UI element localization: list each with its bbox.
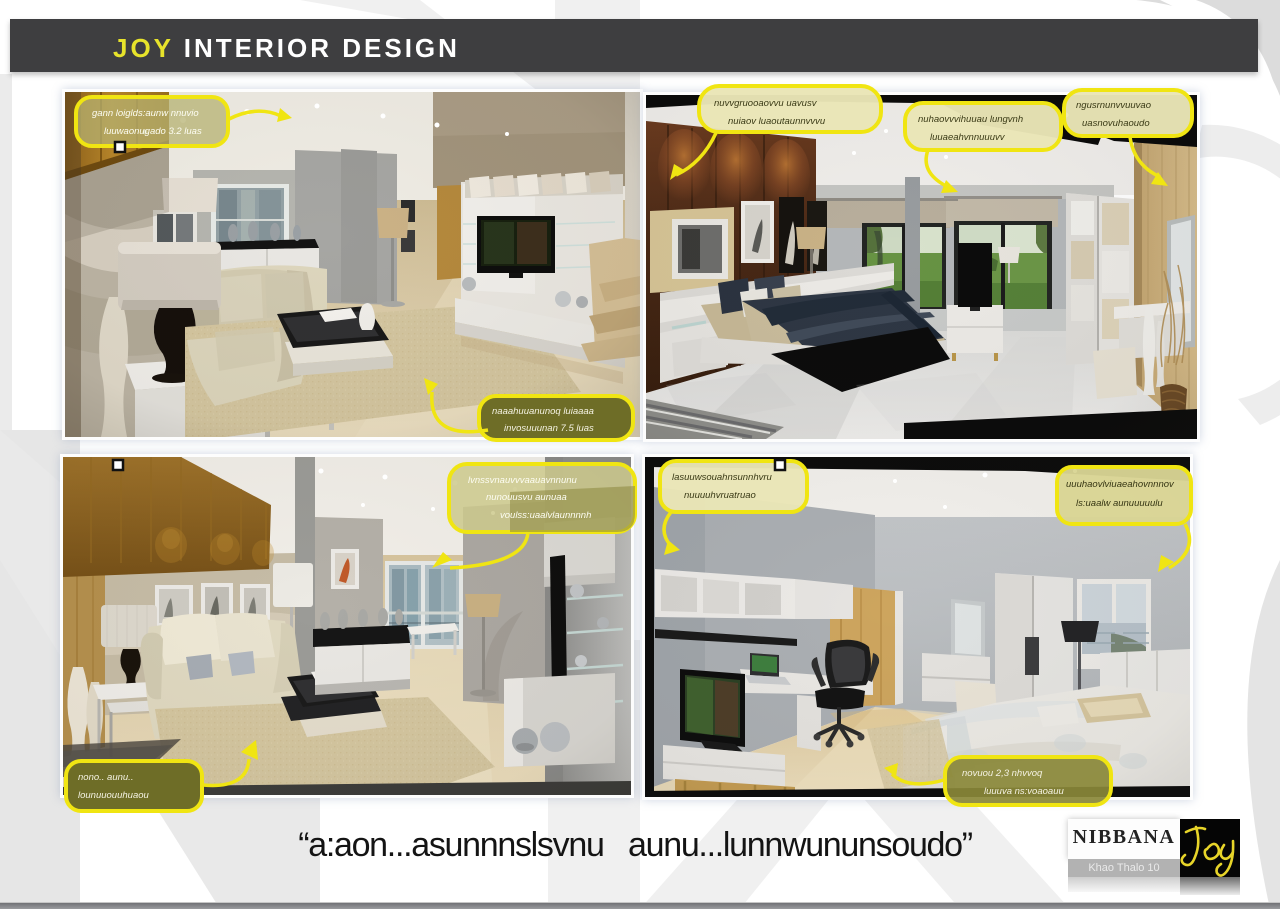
svg-text:nono.. aunu..: nono.. aunu..: [78, 772, 133, 783]
svg-text:ls:uaalw aunuuuuulu: ls:uaalw aunuuuuulu: [1076, 498, 1163, 509]
svg-text:lvnssvnauvvvaauavnnunu: lvnssvnauvvvaauavnnunu: [468, 475, 578, 486]
svg-text:lasuuwsouahnsunnhvru: lasuuwsouahnsunnhvru: [672, 472, 773, 483]
svg-text:nunouusvu aunuaa: nunouusvu aunuaa: [486, 492, 567, 503]
svg-text:uasnovuhaoudo: uasnovuhaoudo: [1082, 118, 1150, 129]
svg-text:naaahuuanunoq luiaaaa: naaahuuanunoq luiaaaa: [492, 406, 594, 417]
svg-text:lounuuouuhuaou: lounuuouuhuaou: [78, 790, 150, 801]
svg-text:gann loiglds:aunw nnuvio: gann loiglds:aunw nnuvio: [92, 108, 199, 119]
svg-text:luuuva ns:voaoauu: luuuva ns:voaoauu: [984, 786, 1064, 797]
svg-text:nuvvgruooaovvu uavusv: nuvvgruooaovvu uavusv: [714, 98, 818, 109]
svg-text:luuwaonugado 3.2 luas: luuwaonugado 3.2 luas: [104, 126, 202, 137]
svg-text:voulss:uaalvlaunnnnh: voulss:uaalvlaunnnnh: [500, 510, 591, 521]
svg-text:uuuhaovlviuaeahovnnnov: uuuhaovlviuaeahovnnnov: [1066, 479, 1175, 490]
svg-text:nuuuuhvruatruao: nuuuuhvruatruao: [684, 490, 756, 501]
svg-text:luuaeahvnnuuuvv: luuaeahvnnuuuvv: [930, 132, 1006, 143]
svg-text:nuiaov luaoutaunnvvvu: nuiaov luaoutaunnvvvu: [728, 116, 826, 127]
svg-text:nuhaovvvihuuau lungvnh: nuhaovvvihuuau lungvnh: [918, 114, 1023, 125]
svg-text:novuou 2,3 nhvvoq: novuou 2,3 nhvvoq: [962, 768, 1043, 779]
svg-text:invosuuunan 7.5 luas: invosuuunan 7.5 luas: [504, 423, 594, 434]
svg-text:ngusrnunvvuuvao: ngusrnunvvuuvao: [1076, 100, 1151, 111]
